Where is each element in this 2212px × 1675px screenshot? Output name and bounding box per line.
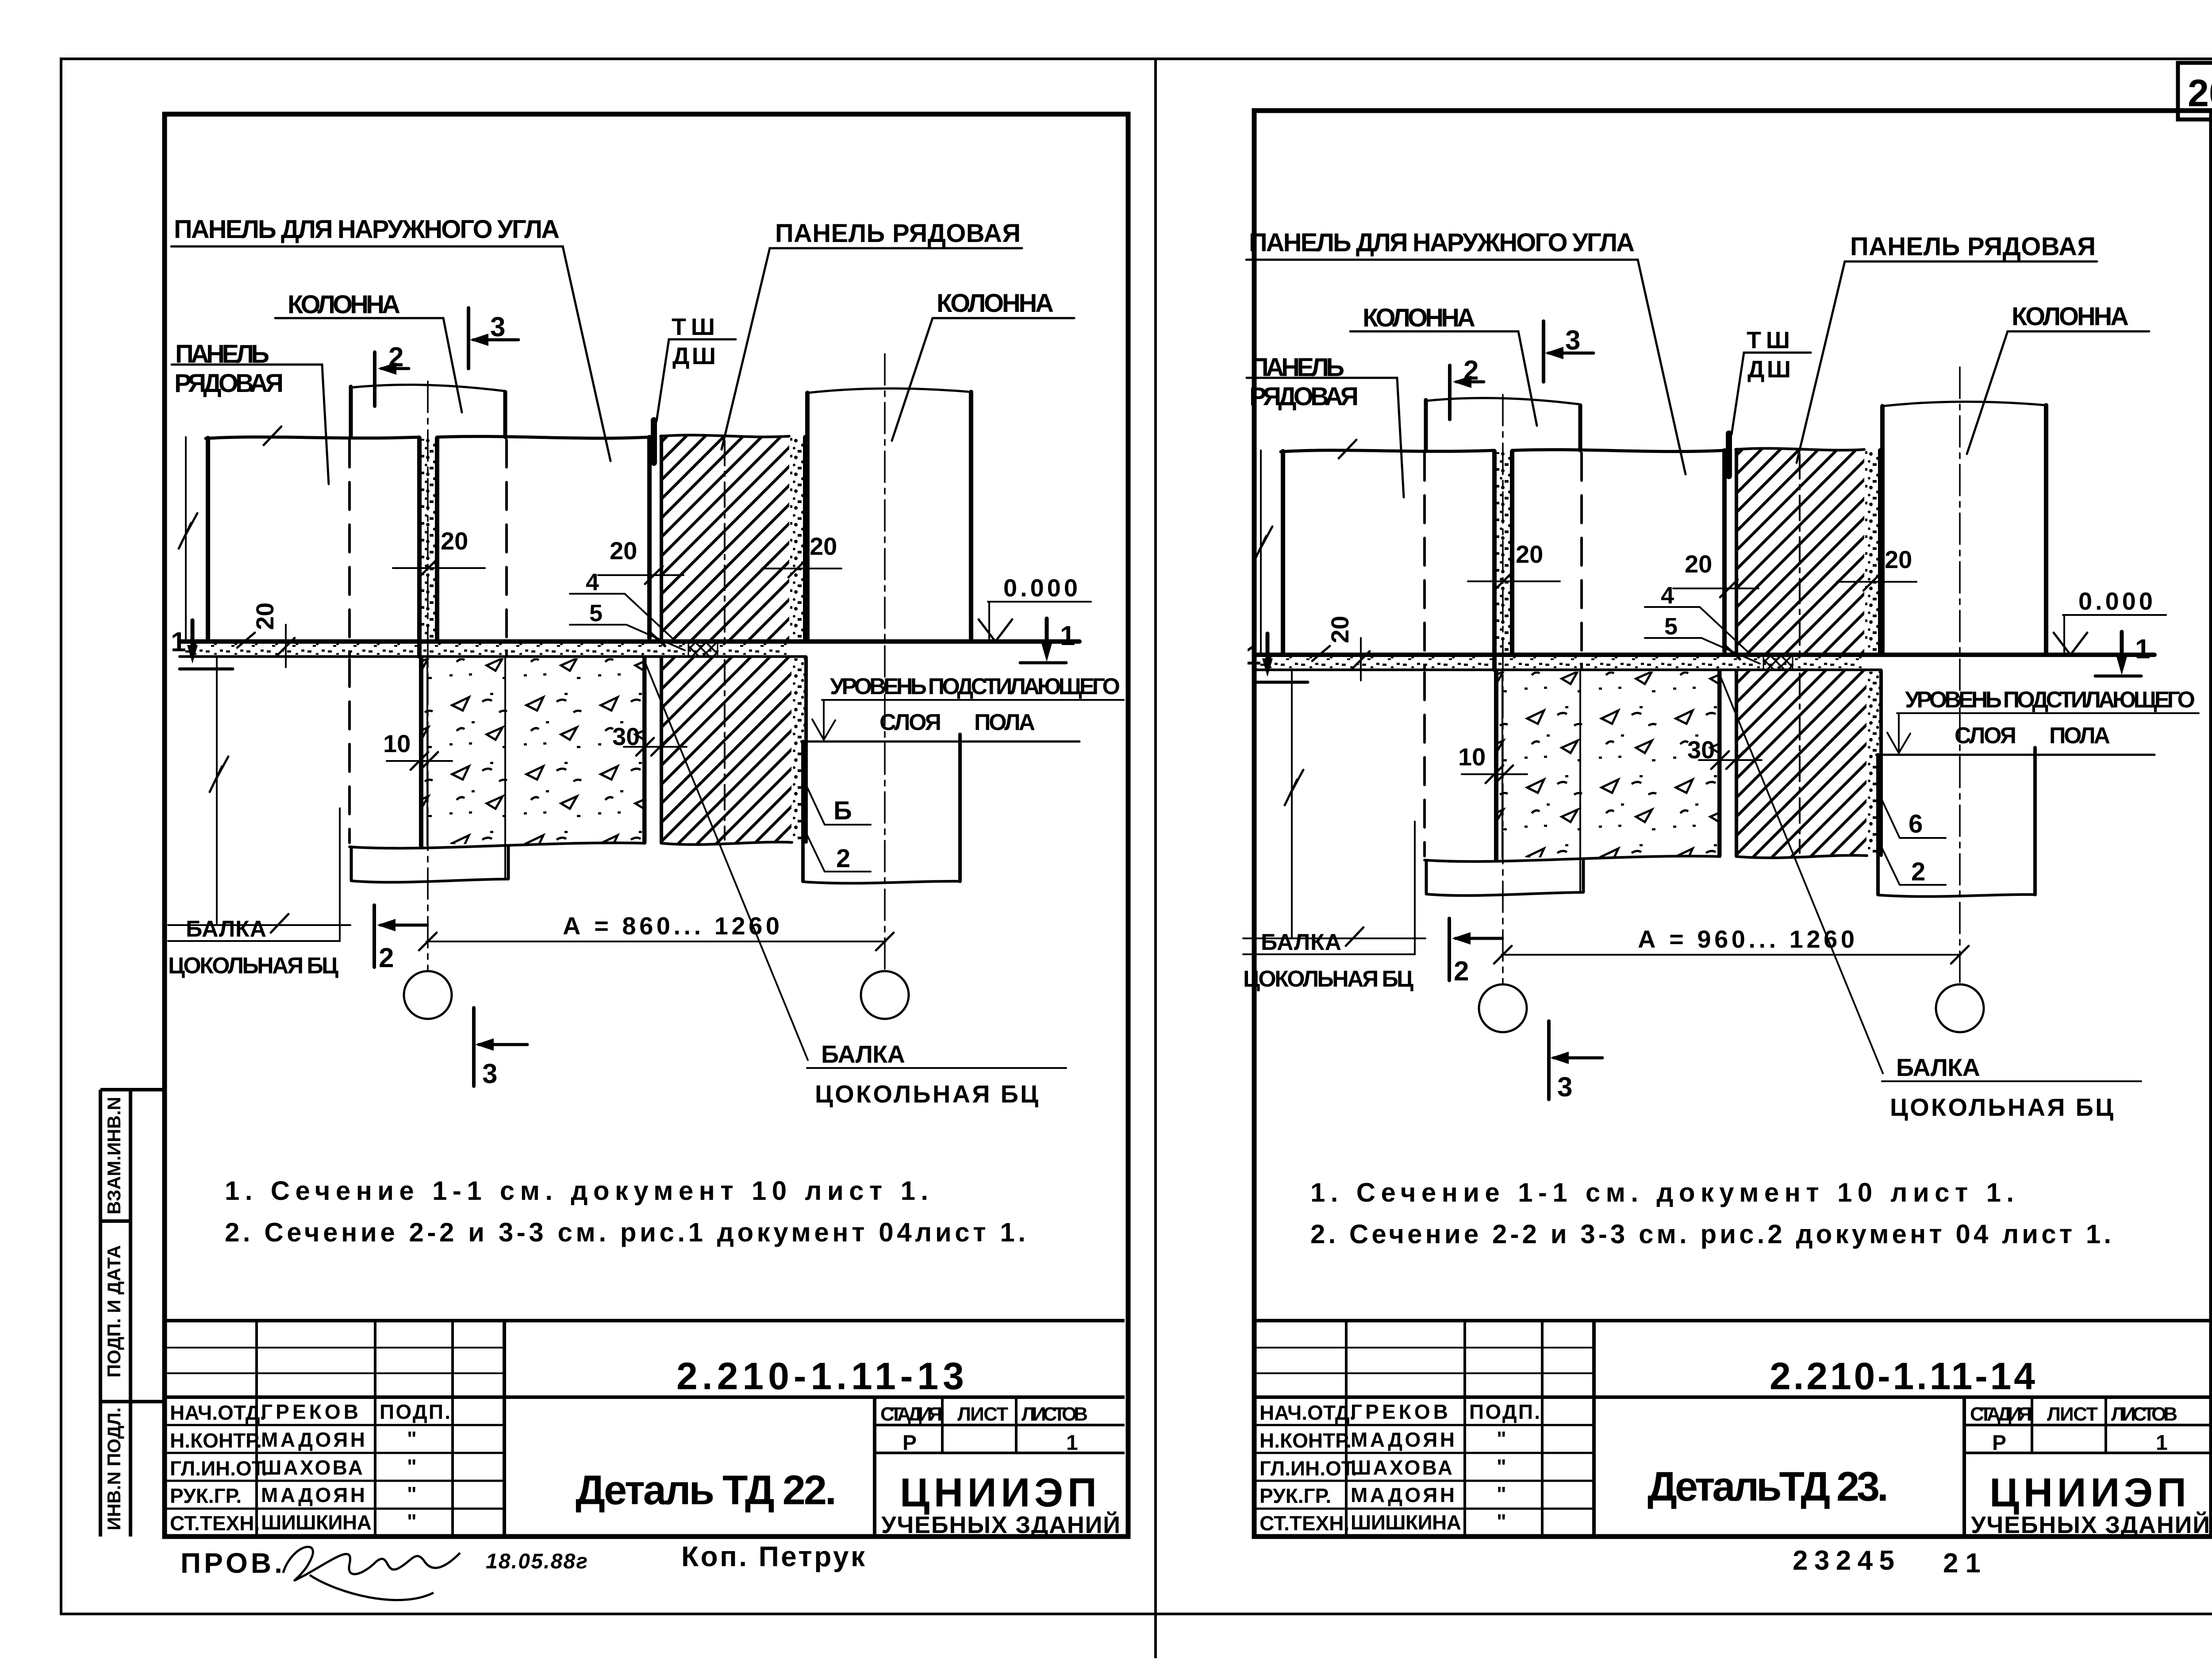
svg-text:2. Сечение 2-2 и 3-3 см. рис.1: 2. Сечение 2-2 и 3-3 см. рис.1 документ …	[225, 1218, 1025, 1247]
svg-text:2. Сечение 2-2 и 3-3 см. рис.2: 2. Сечение 2-2 и 3-3 см. рис.2 документ …	[1310, 1219, 2111, 1249]
svg-text:20: 20	[2188, 72, 2212, 115]
svg-text:6: 6	[1909, 810, 1923, 838]
svg-text:18.05.88г: 18.05.88г	[486, 1550, 588, 1573]
svg-text:Коп. Петрук: Коп. Петрук	[681, 1541, 865, 1572]
svg-text:ПОДП. И ДАТА: ПОДП. И ДАТА	[104, 1245, 124, 1377]
svg-text:Деталь ТД 22.: Деталь ТД 22.	[576, 1467, 837, 1513]
svg-text:2.210-1.11-14: 2.210-1.11-14	[1770, 1355, 2035, 1398]
svg-text:2.210-1.11-13: 2.210-1.11-13	[676, 1355, 964, 1398]
svg-text:ДетальТД 23.: ДетальТД 23.	[1647, 1463, 1889, 1510]
svg-text:ИНВ.N ПОДЛ.: ИНВ.N ПОДЛ.	[104, 1407, 124, 1530]
svg-text:ВЗАМ.ИНВ.N: ВЗАМ.ИНВ.N	[104, 1097, 124, 1214]
svg-text:ПРОВ.: ПРОВ.	[180, 1547, 282, 1579]
svg-text:Б: Б	[833, 796, 852, 825]
